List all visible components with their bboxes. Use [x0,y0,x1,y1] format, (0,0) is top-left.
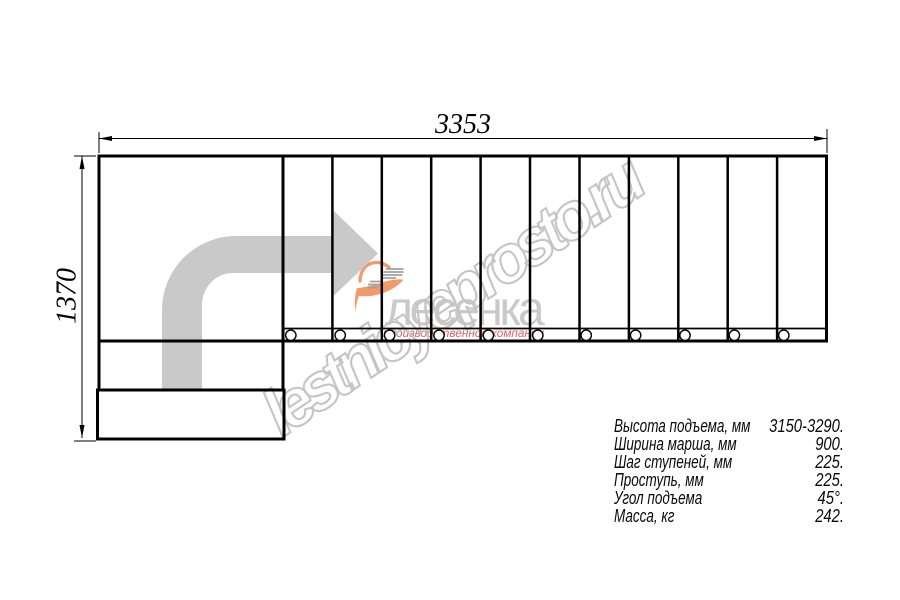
svg-text:1370: 1370 [52,268,83,324]
svg-text:242.: 242. [814,505,844,526]
svg-text:Масса, кг: Масса, кг [614,506,674,527]
svg-text:3353: 3353 [434,109,491,140]
